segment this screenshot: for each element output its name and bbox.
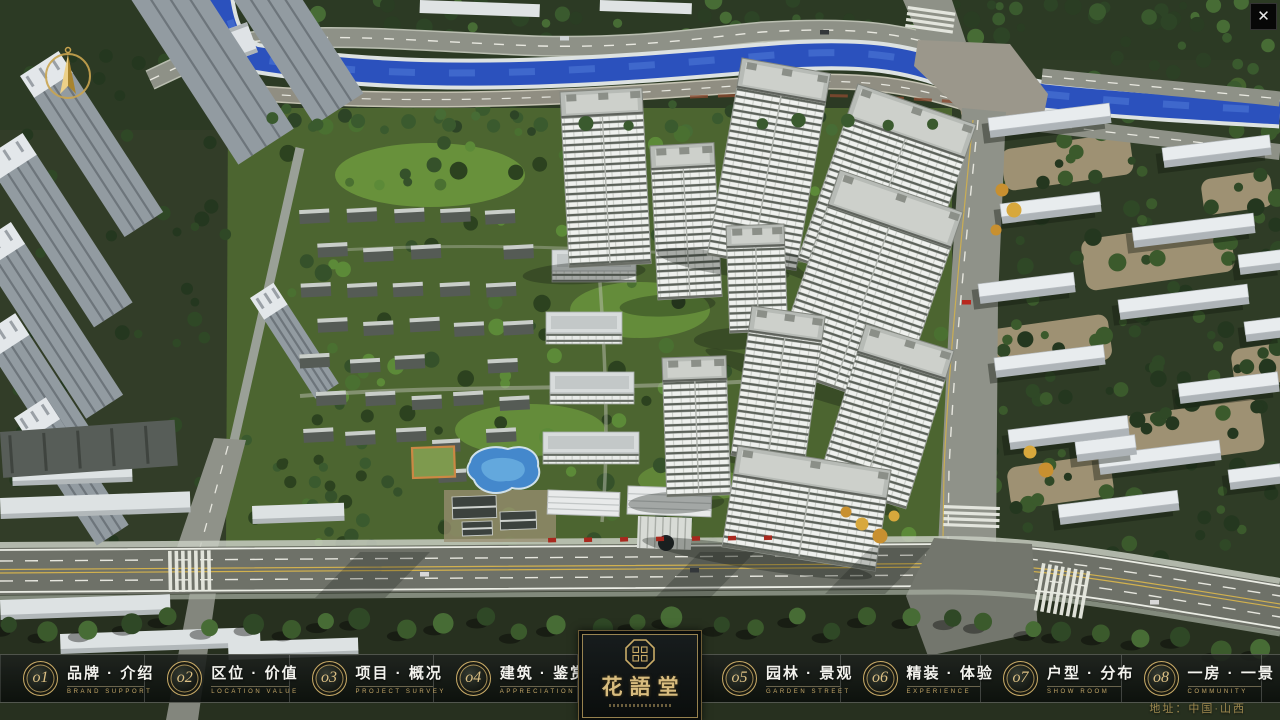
nav-item-label-en: SHOW ROOM [1047, 689, 1121, 695]
nav-item-label-en: LOCATION VALUE [211, 689, 288, 695]
masterplan-render[interactable] [0, 0, 1280, 720]
nav-item-brand-intro[interactable]: o1品牌 · 介绍BRAND SUPPORT [0, 655, 145, 702]
nav-item-number: o7 [1013, 669, 1029, 687]
nav-item-label-cn: 建筑 · 鉴赏 [500, 662, 577, 687]
compass-north-icon [38, 40, 98, 104]
nav-item-label-cn: 项目 · 概况 [356, 662, 433, 687]
nav-item-location-value[interactable]: o2区位 · 价值LOCATION VALUE [145, 655, 289, 702]
nav-item-number: o2 [177, 669, 193, 687]
nav-item-one-room-one-view[interactable]: o8一房 · 一景COMMUNITY [1122, 655, 1263, 702]
nav-item-label-en: GARDEN STREET [766, 689, 840, 695]
nav-item-label-cn: 一房 · 一景 [1188, 662, 1262, 687]
nav-item-label-en: COMMUNITY [1188, 689, 1262, 695]
nav-item-label-cn: 品牌 · 介绍 [67, 662, 144, 687]
nav-item-number-badge: o6 [863, 661, 898, 696]
nav-item-label-cn: 区位 · 价值 [211, 662, 288, 687]
nav-item-label-en: EXPERIENCE [907, 689, 981, 695]
nav-item-label-cn: 园林 · 景观 [766, 662, 840, 687]
sales-app-window: ✕ o1品牌 · 介绍BRAND SUPPORTo2区位 · 价值LOCATIO… [0, 0, 1280, 720]
nav-group-right: o5园林 · 景观GARDEN STREETo6精装 · 体验EXPERIENC… [700, 655, 1262, 702]
site-address: 地址：中国·山西 [1149, 700, 1246, 716]
nav-item-label-en: APPRECIATION [500, 689, 577, 695]
nav-item-number: o5 [732, 669, 748, 687]
close-icon: ✕ [1257, 7, 1270, 25]
brand-seal-icon [624, 638, 656, 670]
nav-item-architecture-appreciation[interactable]: o4建筑 · 鉴赏APPRECIATION [434, 655, 578, 702]
brand-subtitle-line [609, 704, 671, 707]
nav-group-left: o1品牌 · 介绍BRAND SUPPORTo2区位 · 价值LOCATION … [0, 655, 578, 702]
nav-item-number-badge: o3 [312, 661, 347, 696]
brand-name: 花語堂 [595, 671, 686, 701]
nav-item-number: o1 [33, 669, 49, 687]
nav-item-number: o4 [465, 669, 481, 687]
nav-item-project-overview[interactable]: o3项目 · 概况PROJECT SURVEY [290, 655, 434, 702]
nav-item-decoration-experience[interactable]: o6精装 · 体验EXPERIENCE [841, 655, 982, 702]
nav-item-garden-landscape[interactable]: o5园林 · 景观GARDEN STREET [700, 655, 841, 702]
nav-item-label-cn: 户型 · 分布 [1047, 662, 1121, 687]
close-button[interactable]: ✕ [1250, 3, 1277, 30]
nav-item-number-badge: o7 [1003, 661, 1038, 696]
nav-item-number-badge: o1 [23, 661, 58, 696]
nav-item-number: o8 [1153, 669, 1169, 687]
nav-item-label-en: PROJECT SURVEY [356, 689, 433, 695]
nav-item-number-badge: o8 [1144, 661, 1179, 696]
nav-item-number: o6 [872, 669, 888, 687]
nav-item-number-badge: o4 [456, 661, 491, 696]
nav-item-label-cn: 精装 · 体验 [907, 662, 981, 687]
nav-item-number-badge: o5 [722, 661, 757, 696]
nav-item-floorplan-distribution[interactable]: o7户型 · 分布SHOW ROOM [981, 655, 1122, 702]
nav-item-label-en: BRAND SUPPORT [67, 689, 144, 695]
nav-item-number: o3 [321, 669, 337, 687]
nav-item-number-badge: o2 [167, 661, 202, 696]
brand-logo[interactable]: 花語堂 [578, 630, 702, 720]
